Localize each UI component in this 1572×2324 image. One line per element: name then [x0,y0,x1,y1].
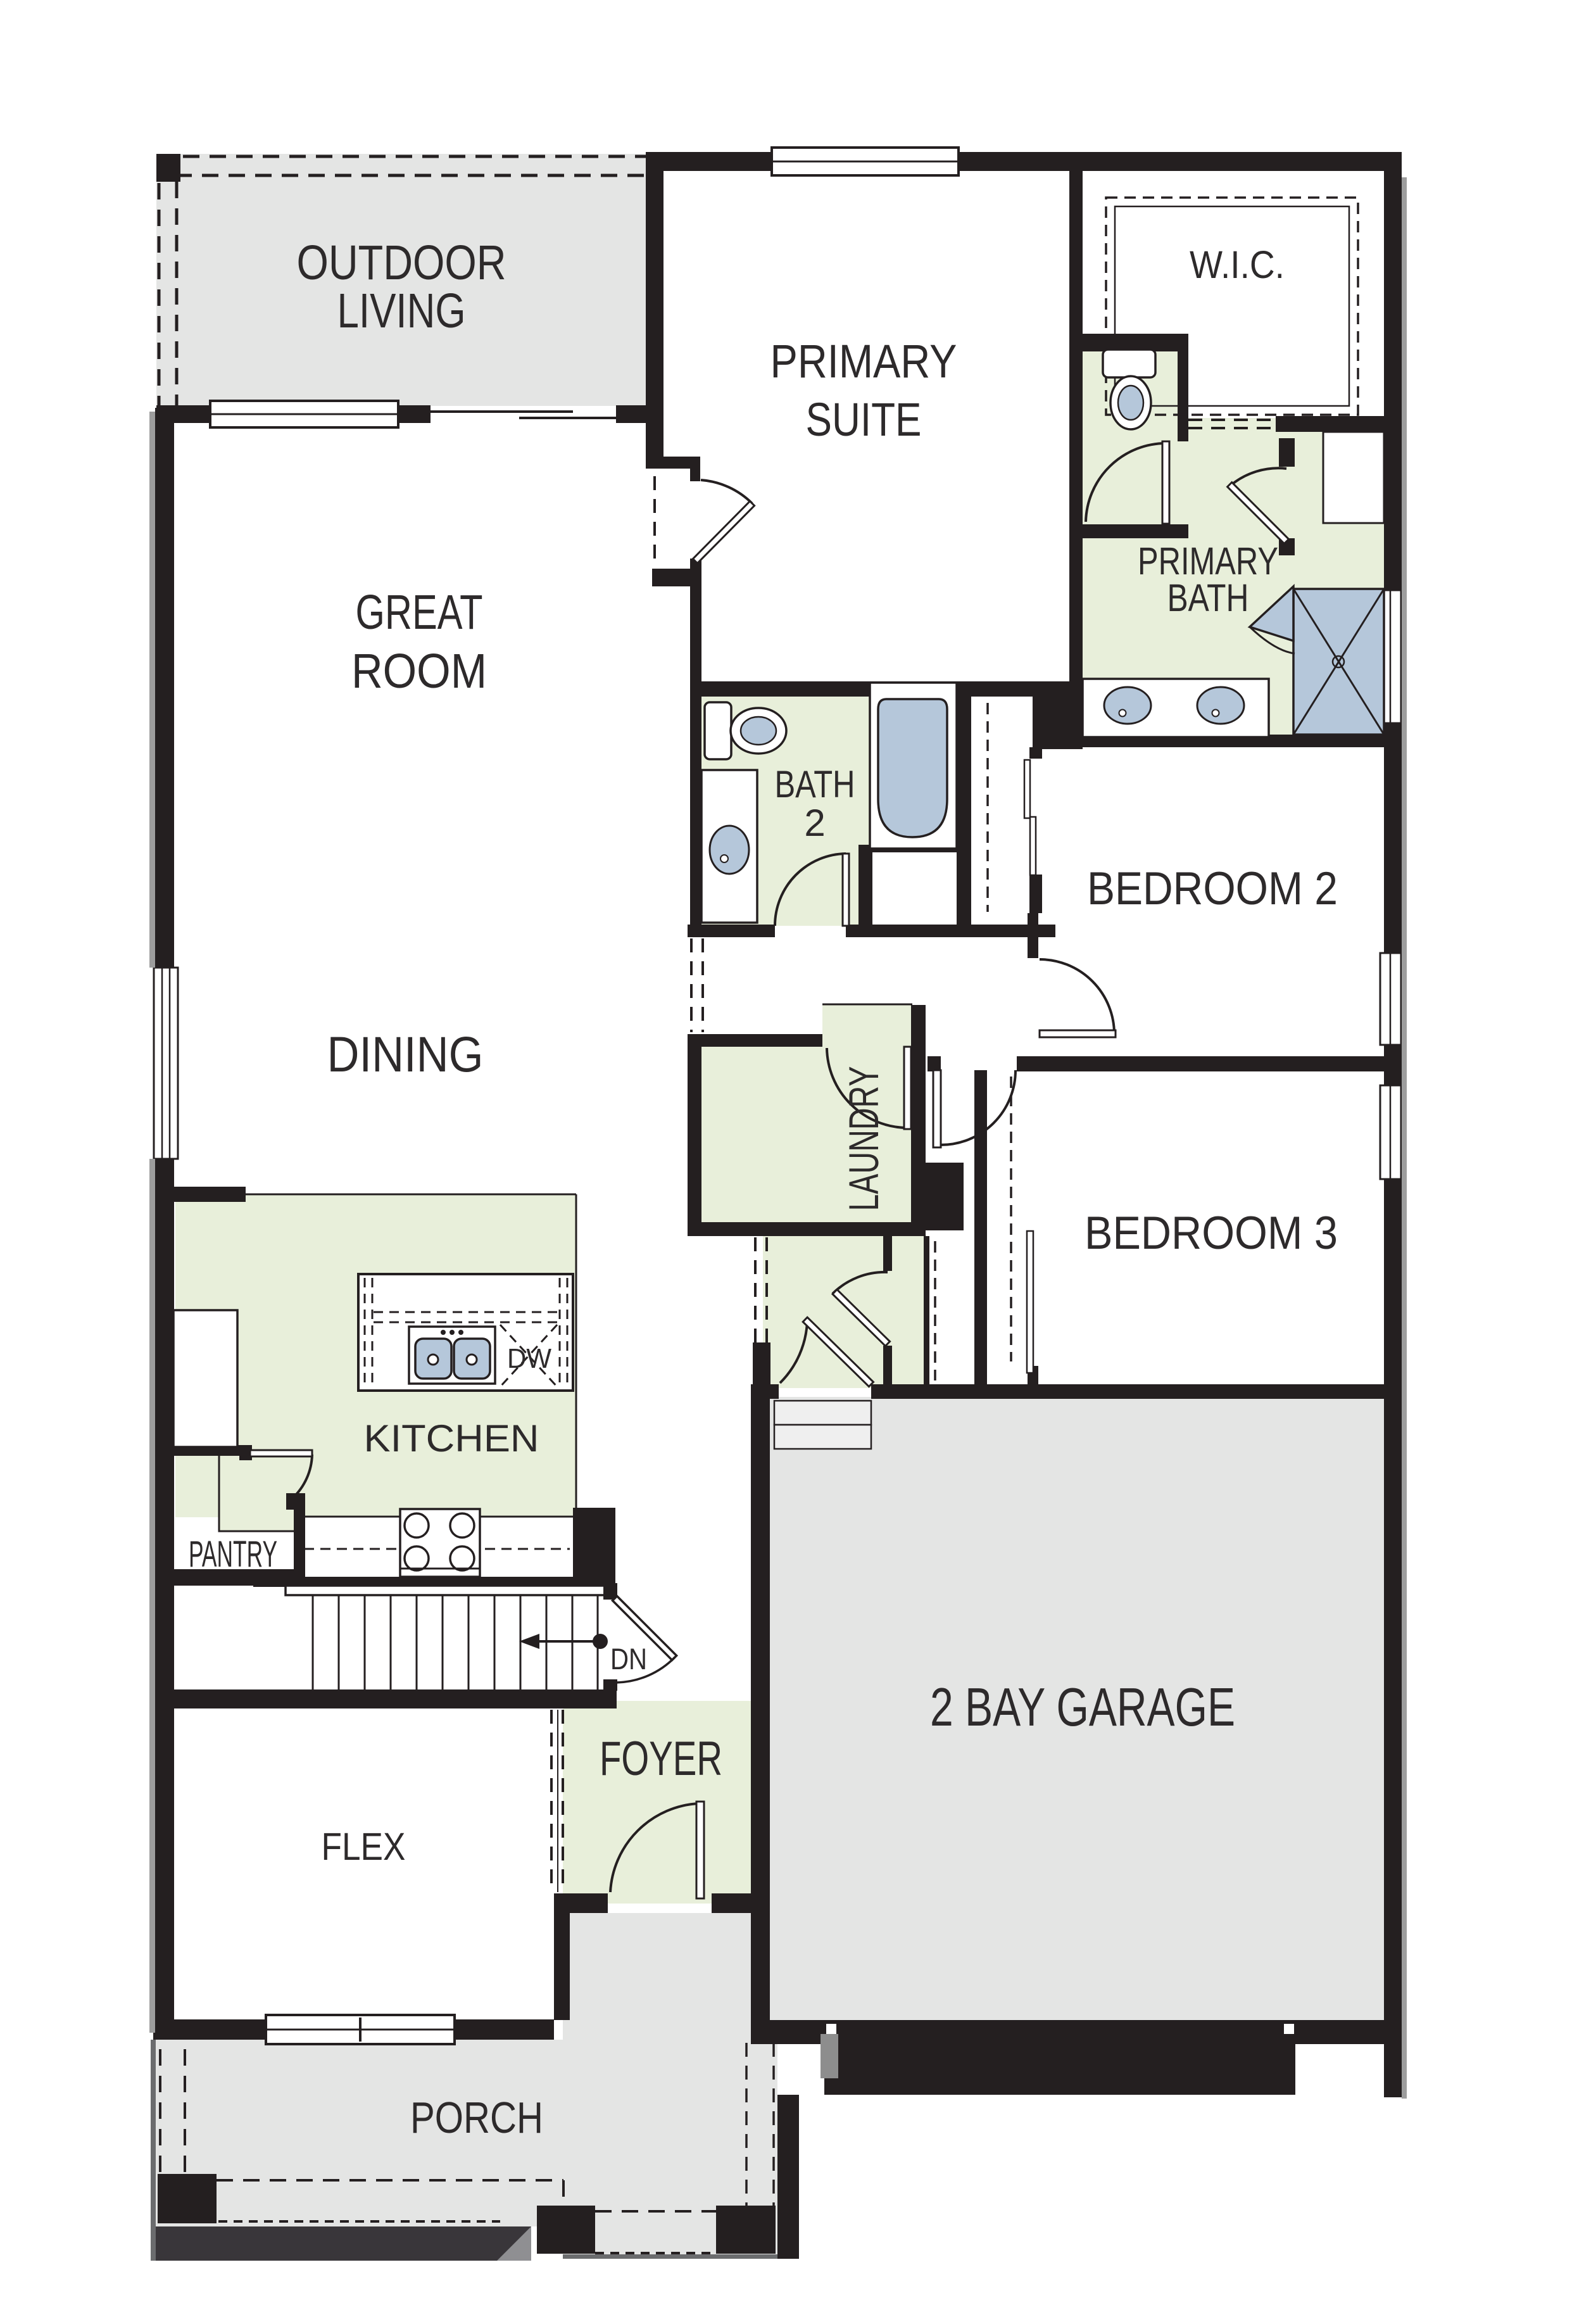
svg-text:DINING: DINING [327,1026,484,1082]
svg-text:LAUNDRY: LAUNDRY [840,1066,887,1211]
svg-text:GREAT: GREAT [356,585,483,640]
svg-text:PANTRY: PANTRY [189,1534,277,1575]
svg-text:DW: DW [507,1343,551,1374]
svg-text:SUITE: SUITE [806,393,922,446]
svg-text:PORCH: PORCH [410,2093,543,2142]
svg-text:KITCHEN: KITCHEN [364,1417,539,1460]
svg-text:2 BAY GARAGE: 2 BAY GARAGE [930,1677,1235,1738]
svg-text:ROOM: ROOM [351,644,487,698]
svg-text:BEDROOM 3: BEDROOM 3 [1085,1208,1338,1259]
svg-text:BATH: BATH [775,763,855,805]
svg-text:FOYER: FOYER [600,1732,722,1786]
svg-text:FLEX: FLEX [322,1825,406,1868]
svg-text:BATH: BATH [1167,576,1249,619]
svg-text:PRIMARY: PRIMARY [770,335,957,388]
svg-text:W.I.C.: W.I.C. [1190,243,1285,286]
svg-text:OUTDOOR: OUTDOOR [297,236,506,290]
svg-text:DN: DN [610,1642,647,1676]
svg-text:BEDROOM 2: BEDROOM 2 [1087,863,1338,914]
svg-text:2: 2 [804,802,825,844]
svg-text:LIVING: LIVING [337,284,466,338]
